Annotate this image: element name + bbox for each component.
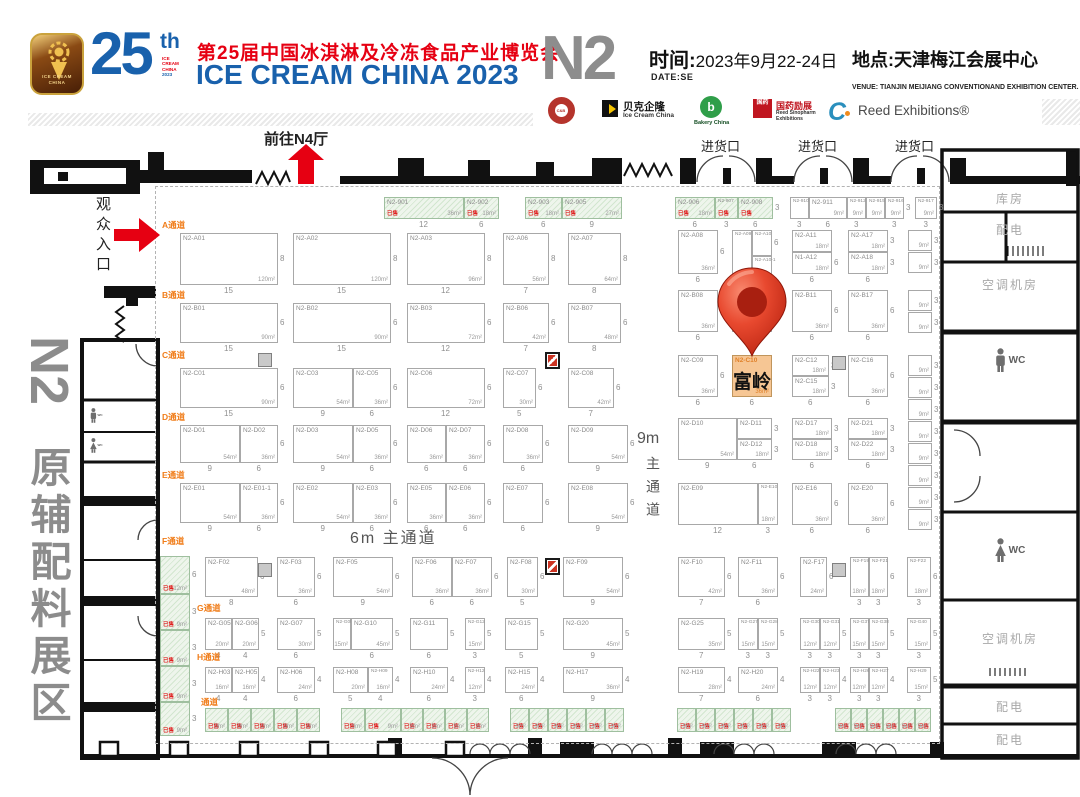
- booth-dimension: 6: [280, 440, 284, 448]
- booth-bsize: 36m²: [526, 455, 540, 461]
- booth-sold[interactable]: 9m²: [908, 252, 932, 273]
- booth-bsize: 45m²: [376, 642, 390, 648]
- booth-N2-H26[interactable]: N2-H2612m²: [850, 667, 869, 693]
- booth-bsize: 18m²: [812, 368, 826, 374]
- booth-bsize: 90m²: [374, 335, 388, 341]
- booth-bid: N2-B01: [183, 305, 205, 312]
- booth-sold[interactable]: 已售9m²: [883, 708, 899, 732]
- booth-N2-F06[interactable]: N2-F0636m²: [412, 557, 452, 597]
- booth-dimension: 6: [494, 573, 498, 581]
- booth-N2-F10[interactable]: N2-F1042m²: [678, 557, 725, 597]
- booth-dimension: 8: [229, 599, 233, 607]
- booth-N2-D17[interactable]: N2-D1718m²: [792, 418, 832, 439]
- booth-bsize: 9m²: [177, 658, 187, 664]
- booth-N2-C08[interactable]: N2-C0842m²: [568, 368, 614, 408]
- booth-bsize: 9m²: [177, 694, 187, 700]
- booth-sold[interactable]: 已售9m²: [899, 708, 915, 732]
- booth-N2-D10[interactable]: N2-D1054m²: [678, 418, 737, 460]
- booth-bid: N2-G38: [872, 620, 889, 625]
- booth-sold[interactable]: 已售9m²: [586, 708, 605, 732]
- booth-N2-D05[interactable]: N2-D0536m²: [353, 425, 391, 463]
- booth-dimension: 3: [834, 446, 838, 454]
- booth-N2-H15[interactable]: N2-H1524m²: [505, 667, 538, 693]
- booth-N2-A09[interactable]: N2-A09: [732, 230, 752, 274]
- booth-dimension: 4: [625, 676, 629, 684]
- booth-N2-C09[interactable]: N2-C0936m²: [678, 355, 718, 397]
- booth-sold[interactable]: 已售9m²: [677, 708, 696, 732]
- booth-bsize: 18m²: [852, 589, 866, 595]
- booth-dimension: 3: [192, 608, 196, 616]
- booth-sold[interactable]: 已售9m²: [445, 708, 467, 732]
- sold-badge: 已售: [718, 209, 729, 217]
- booth-bsize: 15m²: [871, 642, 885, 648]
- sold-badge: 已售: [528, 209, 539, 217]
- booth-N2-A08[interactable]: N2-A0836m²: [678, 230, 718, 274]
- booth-N2-E09[interactable]: N2-E09: [678, 483, 758, 525]
- booth-sold[interactable]: 已售9m²: [772, 708, 791, 732]
- booth-N2-G25[interactable]: N2-G2535m²: [678, 618, 725, 650]
- booth-sold[interactable]: 已售9m²: [251, 708, 274, 732]
- booth-bsize: 16m²: [242, 685, 256, 691]
- booth-dimension: 3: [775, 204, 779, 212]
- booth-dimension: 6: [625, 573, 629, 581]
- booth-N2-F05[interactable]: N2-F0554m²: [333, 557, 393, 597]
- booth-N2-E10[interactable]: N2-E1018m²: [758, 483, 778, 525]
- booth-N2-B08[interactable]: N2-B0836m²: [678, 290, 718, 332]
- booth-N2-F21[interactable]: N2-F2118m²: [869, 557, 888, 597]
- booth-N2-H20[interactable]: N2-H2024m²: [738, 667, 778, 693]
- booth-N2-C05[interactable]: N2-C0536m²: [353, 368, 391, 408]
- booth-bid: N2-H10: [413, 669, 435, 676]
- booth-N2-G06[interactable]: N2-G0620m²: [232, 618, 259, 650]
- booth-sold[interactable]: 已售9m²: [696, 708, 715, 732]
- booth-bsize: 42m²: [708, 589, 722, 595]
- booth-sold[interactable]: 9m²: [908, 312, 932, 333]
- booth-N2-915[interactable]: N2-9159m²: [866, 197, 885, 219]
- booth-sold[interactable]: 已售9m²: [365, 708, 401, 732]
- booth-N2-G05[interactable]: N2-G0520m²: [205, 618, 232, 650]
- booth-bid: N2-C06: [410, 370, 432, 377]
- booth-N2-H09[interactable]: N2-H0916m²: [368, 667, 393, 693]
- booth-sold[interactable]: 9m²: [908, 487, 932, 508]
- booth-dimension: 5: [487, 630, 491, 638]
- booth-N2-D18[interactable]: N2-D1818m²: [792, 439, 832, 460]
- booth-sold[interactable]: 9m²: [908, 421, 932, 442]
- aisle-label: G通道: [197, 602, 221, 614]
- booth-sold[interactable]: 9m²: [908, 443, 932, 464]
- booth-N2-917[interactable]: N2-9179m²: [915, 197, 937, 219]
- booth-bsize: 9m²: [919, 368, 929, 374]
- booth-bsize: 18m²: [482, 211, 496, 217]
- booth-N2-F02[interactable]: N2-F0248m²: [205, 557, 258, 597]
- booth-N2-C16[interactable]: N2-C1636m²: [848, 355, 888, 397]
- booth-bid: N2-C03: [296, 370, 318, 377]
- booth-N2-906[interactable]: N2-906已售18m²: [675, 197, 715, 219]
- booth-N2-H23[interactable]: N2-H2312m²: [820, 667, 840, 693]
- booth-N2-G12[interactable]: N2-G1215m²: [465, 618, 485, 650]
- booth-sold[interactable]: 已售9m²: [548, 708, 567, 732]
- booth-dimension: 3: [724, 221, 728, 229]
- booth-N2-G31[interactable]: N2-G3112m²: [820, 618, 840, 650]
- booth-dimension: 6: [834, 259, 838, 267]
- booth-sold[interactable]: 已售9m²: [753, 708, 772, 732]
- booth-N2-E20[interactable]: N2-E2036m²: [848, 483, 888, 525]
- booth-N2-C03[interactable]: N2-C0354m²: [293, 368, 353, 408]
- booth-sold[interactable]: 9m²: [908, 355, 932, 376]
- booth-N2-B11[interactable]: N2-B1136m²: [792, 290, 832, 332]
- booth-dimension: 4: [727, 676, 731, 684]
- booth-N2-H27[interactable]: N2-H2712m²: [869, 667, 888, 693]
- booth-N2-C01[interactable]: N2-C0190m²: [180, 368, 278, 408]
- booth-N2-B03[interactable]: N2-B0372m²: [407, 303, 485, 343]
- booth-dimension: 6: [616, 384, 620, 392]
- booth-N2-G30[interactable]: N2-G3012m²: [800, 618, 820, 650]
- sold-badge: 已售: [467, 209, 478, 217]
- booth-sold[interactable]: 已售9m²: [567, 708, 586, 732]
- booth-sold[interactable]: 已售9m²: [734, 708, 753, 732]
- booth-bid: N2-D10: [681, 420, 703, 427]
- booth-sold[interactable]: 已售9m²: [467, 708, 489, 732]
- booth-bsize: 9m²: [834, 211, 844, 217]
- structural-column: [258, 353, 272, 367]
- booth-N2-E08[interactable]: N2-E0854m²: [568, 483, 628, 523]
- booth-N2-F19[interactable]: N2-F1918m²: [850, 557, 869, 597]
- booth-sold[interactable]: 已售9m²: [160, 594, 190, 630]
- booth-dimension: 3: [192, 644, 196, 652]
- booth-N2-D09[interactable]: N2-D0954m²: [568, 425, 628, 463]
- booth-N2-G20[interactable]: N2-G2045m²: [563, 618, 623, 650]
- booth-sold[interactable]: 已售9m²: [605, 708, 624, 732]
- booth-dimension: 3: [892, 221, 896, 229]
- booth-dimension: 6: [780, 573, 784, 581]
- booth-bid: N2-H17: [566, 669, 588, 676]
- booth-N2-903[interactable]: N2-903已售18m²: [525, 197, 562, 219]
- booth-N1-A12[interactable]: N1-A1218m²: [792, 252, 832, 274]
- booth-bid: N2-G06: [235, 620, 258, 627]
- booth-sold[interactable]: 已售9m²: [401, 708, 423, 732]
- booth-dimension: 9: [321, 465, 325, 473]
- booth-bsize: 12m²: [823, 642, 837, 648]
- booth-bid: N2-F05: [336, 559, 358, 566]
- booth-dimension: 6: [866, 462, 870, 470]
- booth-bsize: 54m²: [376, 589, 390, 595]
- booth-N2-907[interactable]: N2-907已售: [715, 197, 738, 219]
- booth-dimension: 6: [545, 440, 549, 448]
- booth-dimension: 3: [924, 221, 928, 229]
- booth-bid: N2-E02: [296, 485, 318, 492]
- booth-bid: N2-917: [918, 199, 934, 204]
- booth-N2-D21[interactable]: N2-D2118m²: [848, 418, 888, 439]
- booth-bid: N2-E06: [449, 485, 471, 492]
- booth-N2-F22[interactable]: N2-F2218m²: [907, 557, 931, 597]
- booth-dimension: 5: [261, 630, 265, 638]
- booth-N2-B09[interactable]: N2-B09: [732, 290, 772, 332]
- booth-N2-D03[interactable]: N2-D0354m²: [293, 425, 353, 463]
- booth-N2-B06[interactable]: N2-B0642m²: [503, 303, 549, 343]
- booth-sold[interactable]: 已售9m²: [867, 708, 883, 732]
- booth-N2-F08[interactable]: N2-F0830m²: [507, 557, 538, 597]
- booth-sold[interactable]: 9m²: [908, 465, 932, 486]
- booth-sold[interactable]: 9m²: [908, 290, 932, 311]
- booth-bsize: 9m²: [352, 724, 362, 730]
- booth-dimension: 8: [393, 255, 397, 263]
- booth-dimension: 6: [720, 248, 724, 256]
- booth-N2-911[interactable]: N2-9119m²: [809, 197, 847, 219]
- booth-N2-D22[interactable]: N2-D2218m²: [848, 439, 888, 460]
- booth-sold[interactable]: 已售9m²: [228, 708, 251, 732]
- booth-bsize: 12m²: [173, 586, 187, 592]
- booth-bid: N2-F06: [415, 559, 437, 566]
- booth-dimension: 3: [797, 221, 801, 229]
- booth-dimension: 5: [517, 410, 521, 418]
- booth-dimension: 3: [766, 652, 770, 660]
- booth-N2-D01[interactable]: N2-D0154m²: [180, 425, 240, 463]
- booth-dimension: 5: [727, 630, 731, 638]
- booth-bsize: 36m²: [298, 589, 312, 595]
- booth-bid: N2-C10: [735, 357, 757, 364]
- up-arrow-icon: [288, 144, 324, 184]
- booth-dimension: 12: [441, 287, 450, 295]
- booth-bid: N2-G07: [280, 620, 303, 627]
- booth-N2-F17[interactable]: N2-F1724m²: [800, 557, 827, 597]
- booth-N2-B02[interactable]: N2-B0290m²: [293, 303, 391, 343]
- booth-N2-A17[interactable]: N2-A1718m²: [848, 230, 888, 252]
- booth-N2-A02[interactable]: N2-A02120m²: [293, 233, 391, 285]
- booth-N2-C12[interactable]: N2-C1218m²: [792, 355, 829, 376]
- booth-dimension: 3: [934, 516, 938, 524]
- aisle-label: 通道: [201, 696, 218, 708]
- booth-N2-E01-1[interactable]: N2-E01-136m²: [240, 483, 278, 523]
- booth-N2-A07[interactable]: N2-A0764m²: [568, 233, 621, 285]
- booth-dimension: 6: [294, 695, 298, 703]
- booth-bid: N2-908: [741, 199, 762, 206]
- booth-sold[interactable]: 9m²: [908, 509, 932, 530]
- booth-bid: N2-H08: [336, 669, 358, 676]
- booth-N2-A18[interactable]: N2-A1818m²: [848, 252, 888, 274]
- booth-bid: N2-D07: [449, 427, 471, 434]
- booth-dimension: 7: [589, 410, 593, 418]
- floorplan-page: ICE CREAM CHINA 25 th ICECREAMCHINA2023 …: [0, 0, 1080, 797]
- booth-sold[interactable]: 已售9m²: [274, 708, 297, 732]
- booth-dimension: 6: [720, 307, 724, 315]
- booth-N2-B07[interactable]: N2-B0748m²: [568, 303, 621, 343]
- room-label-空调机房: 空调机房: [942, 630, 1078, 647]
- booth-bsize: 36m²: [606, 685, 620, 691]
- booth-dimension: 6: [890, 500, 894, 508]
- booth-N2-B17[interactable]: N2-B1736m²: [848, 290, 888, 332]
- booth-N2-A10-1[interactable]: N2-A10-1: [752, 256, 772, 274]
- booth-dimension: 3: [808, 652, 812, 660]
- booth-N2-A03[interactable]: N2-A0396m²: [407, 233, 485, 285]
- booth-bsize: 36m²: [429, 455, 443, 461]
- booth-N2-912[interactable]: N2-9129m²: [847, 197, 866, 219]
- booth-N2-E05[interactable]: N2-E0536m²: [407, 483, 446, 523]
- booth-N2-B01[interactable]: N2-B0190m²: [180, 303, 278, 343]
- sponsor-reed-name: Reed Exhibitions®: [858, 103, 969, 118]
- booth-N2-E01[interactable]: N2-E0154m²: [180, 483, 240, 523]
- booth-sold[interactable]: 9m²: [908, 399, 932, 420]
- booth-N2-D07[interactable]: N2-D0736m²: [446, 425, 485, 463]
- booth-sold[interactable]: 已售9m²: [529, 708, 548, 732]
- booth-N2-G09[interactable]: N2-G0915m²: [333, 618, 351, 650]
- booth-N2-A11[interactable]: N2-A1118m²: [792, 230, 832, 252]
- booth-sold[interactable]: 已售9m²: [160, 630, 190, 666]
- booth-N2-G11[interactable]: N2-G11: [410, 618, 448, 650]
- booth-sold[interactable]: 已售9m²: [423, 708, 445, 732]
- booth-N2-H12[interactable]: N2-H1212m²: [465, 667, 485, 693]
- booth-bid: N2-A10: [755, 232, 771, 237]
- booth-N2-A06[interactable]: N2-A0656m²: [503, 233, 549, 285]
- booth-N2-E06[interactable]: N2-E0636m²: [446, 483, 485, 523]
- booth-sold[interactable]: 已售9m²: [715, 708, 734, 732]
- booth-bid: N2-E20: [851, 485, 873, 492]
- booth-N2-H19[interactable]: N2-H1928m²: [678, 667, 725, 693]
- sponsor-bakery-icon: b: [700, 96, 722, 118]
- booth-dimension: 6: [541, 221, 545, 229]
- booth-sold[interactable]: 9m²: [908, 377, 932, 398]
- booth-bsize: 36m²: [447, 211, 461, 217]
- booth-N2-H06[interactable]: N2-H0624m²: [277, 667, 315, 693]
- booth-bid: N2-F08: [510, 559, 532, 566]
- booth-bsize: 9m²: [454, 724, 464, 730]
- booth-N2-H29[interactable]: N2-H2915m²: [907, 667, 931, 693]
- booth-N2-908[interactable]: N2-908已售: [738, 197, 773, 219]
- booth-N2-G10[interactable]: N2-G1045m²: [351, 618, 393, 650]
- booth-bsize: 9m²: [853, 211, 863, 217]
- booth-dimension: 6: [538, 384, 542, 392]
- booth-bid: N2-B08: [681, 292, 703, 299]
- booth-bid: N2-F22: [910, 559, 926, 564]
- booth-N2-C10[interactable]: N2-C10富岭36m²: [732, 355, 772, 397]
- booth-dimension: 7: [699, 599, 703, 607]
- booth-sold[interactable]: 已售9m²: [341, 708, 365, 732]
- booth-N2-901[interactable]: N2-901已售36m²: [384, 197, 464, 219]
- booth-bsize: 9m²: [919, 325, 929, 331]
- booth-dimension: 3: [934, 319, 938, 327]
- booth-N2-H03[interactable]: N2-H0316m²: [205, 667, 232, 693]
- booth-sold[interactable]: 已售9m²: [835, 708, 851, 732]
- booth-sold[interactable]: 已售12m²: [160, 556, 190, 594]
- booth-dimension: 6: [750, 399, 754, 407]
- room-label-wc-female: WC: [90, 438, 103, 453]
- booth-dimension: 3: [831, 383, 835, 391]
- booth-N2-H10[interactable]: N2-H1024m²: [410, 667, 448, 693]
- booth-bsize: 36m²: [815, 517, 829, 523]
- booth-N2-E16[interactable]: N2-E1636m²: [792, 483, 832, 525]
- booth-bid: N2-B11: [795, 292, 817, 299]
- booth-N2-H05[interactable]: N2-H0516m²: [232, 667, 259, 693]
- booth-bsize: 36m²: [761, 589, 775, 595]
- booth-bid: N2-E03: [356, 485, 378, 492]
- booth-sold[interactable]: 9m²: [908, 230, 932, 251]
- booth-N2-905[interactable]: N2-905已售27m²: [562, 197, 622, 219]
- booth-N2-C06[interactable]: N2-C0672m²: [407, 368, 485, 408]
- booth-N2-G28[interactable]: N2-G2815m²: [758, 618, 778, 650]
- booth-N2-910[interactable]: N2-910: [790, 197, 809, 219]
- booth-N2-H17[interactable]: N2-H1736m²: [563, 667, 623, 693]
- booth-dimension: 6: [370, 465, 374, 473]
- booth-bid: N1-A12: [795, 254, 817, 261]
- booth-N2-C15[interactable]: N2-C1518m²: [792, 376, 829, 397]
- booth-N2-D08[interactable]: N2-D0836m²: [503, 425, 543, 463]
- booth-N2-D11[interactable]: N2-D11: [737, 418, 772, 439]
- booth-sold[interactable]: 已售9m²: [915, 708, 931, 732]
- booth-bsize: 15m²: [914, 685, 928, 691]
- booth-sold[interactable]: 已售9m²: [205, 708, 228, 732]
- booth-sold[interactable]: 已售9m²: [851, 708, 867, 732]
- booth-bid: N2-G28: [761, 620, 778, 625]
- booth-N2-916[interactable]: N2-9169m²: [885, 197, 904, 219]
- booth-N2-F07[interactable]: N2-F0736m²: [452, 557, 492, 597]
- aisle-label: A通道: [162, 219, 185, 231]
- booth-bid: N2-F17: [803, 559, 825, 566]
- booth-sold[interactable]: 已售9m²: [160, 666, 190, 702]
- booth-dimension: 4: [780, 676, 784, 684]
- booth-dimension: 4: [540, 676, 544, 684]
- booth-bsize: 9m²: [554, 724, 564, 730]
- booth-N2-G15[interactable]: N2-G15: [505, 618, 538, 650]
- booth-bsize: 35m²: [708, 642, 722, 648]
- booth-N2-G27[interactable]: N2-G2715m²: [738, 618, 758, 650]
- booth-N2-G40[interactable]: N2-G4015m²: [907, 618, 931, 650]
- booth-N2-H22[interactable]: N2-H2212m²: [800, 667, 820, 693]
- booth-N2-C07[interactable]: N2-C0730m²: [503, 368, 536, 408]
- booth-N2-A10[interactable]: N2-A10: [752, 230, 772, 256]
- booth-bsize: 120m²: [258, 277, 275, 283]
- booth-dimension: 6: [463, 465, 467, 473]
- booth-N2-G07[interactable]: N2-G0730m²: [277, 618, 315, 650]
- booth-dimension: 3: [857, 599, 861, 607]
- fire-hydrant-icon: [545, 352, 560, 369]
- booth-bid: N2-910: [793, 199, 809, 204]
- booth-sold[interactable]: 已售9m²: [160, 702, 190, 736]
- booth-bsize: 64m²: [604, 277, 618, 283]
- booth-dimension: 6: [890, 372, 894, 380]
- booth-N2-D12[interactable]: N2-D1218m²: [737, 439, 772, 460]
- booth-sold[interactable]: 已售9m²: [510, 708, 529, 732]
- booth-dimension: 6: [317, 573, 321, 581]
- booth-bsize: 15m²: [761, 642, 775, 648]
- booth-bsize: 36m²: [261, 455, 275, 461]
- sponsor-sinopharm-icon: 国药: [753, 99, 772, 118]
- booth-N2-D06[interactable]: N2-D0636m²: [407, 425, 446, 463]
- booth-N2-D02[interactable]: N2-D0236m²: [240, 425, 278, 463]
- booth-bid: N2-C08: [571, 370, 593, 377]
- booth-dimension: 3: [934, 428, 938, 436]
- booth-N2-H08[interactable]: N2-H0820m²: [333, 667, 368, 693]
- booth-bsize: 24m²: [521, 685, 535, 691]
- booth-dimension: 8: [487, 255, 491, 263]
- booth-N2-G37[interactable]: N2-G3715m²: [850, 618, 869, 650]
- booth-N2-A01[interactable]: N2-A01120m²: [180, 233, 278, 285]
- booth-bsize: 9m²: [476, 724, 486, 730]
- booth-N2-G38[interactable]: N2-G3815m²: [869, 618, 888, 650]
- booth-N2-F11[interactable]: N2-F1136m²: [738, 557, 778, 597]
- booth-dimension: 6: [463, 525, 467, 533]
- booth-N2-F09[interactable]: N2-F0954m²: [563, 557, 623, 597]
- booth-N2-E07[interactable]: N2-E07: [503, 483, 543, 523]
- booth-dimension: 12: [441, 345, 450, 353]
- booth-bsize: 36m²: [701, 389, 715, 395]
- booth-bsize: 20m²: [351, 685, 365, 691]
- booth-dimension: 3: [473, 652, 477, 660]
- booth-N2-E02[interactable]: N2-E0254m²: [293, 483, 353, 523]
- booth-sold[interactable]: 已售9m²: [297, 708, 320, 732]
- booth-N2-902[interactable]: N2-902已售18m²: [464, 197, 499, 219]
- booth-N2-F03[interactable]: N2-F0336m²: [277, 557, 315, 597]
- zone-banner-name: 原辅配料展区: [26, 446, 67, 728]
- booth-N2-E03[interactable]: N2-E0336m²: [353, 483, 391, 523]
